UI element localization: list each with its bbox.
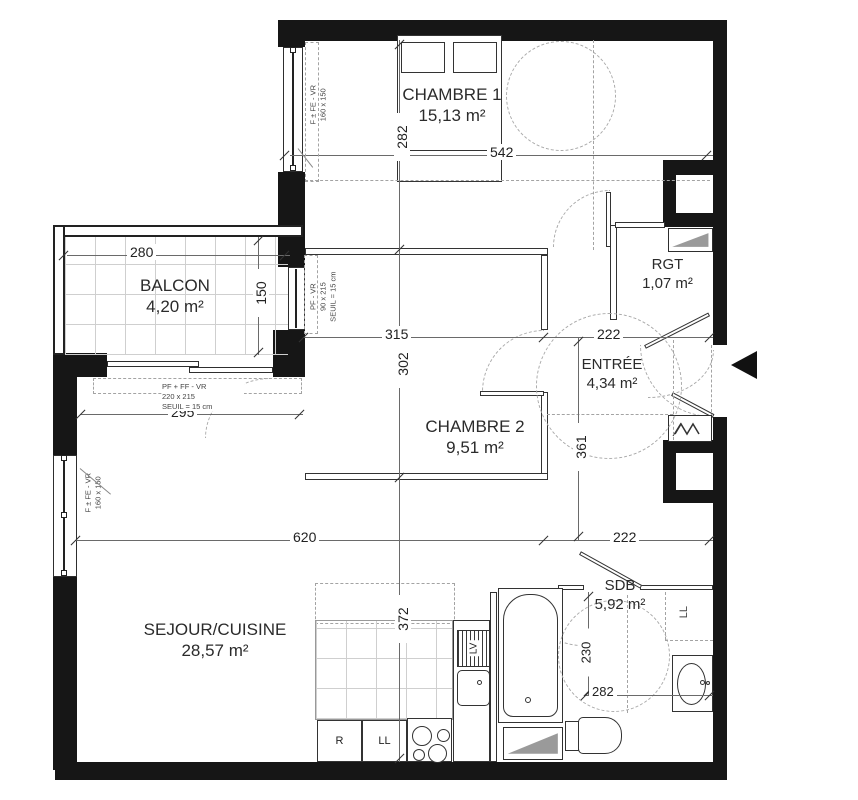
dim-chambre2-h: 302: [395, 340, 411, 388]
dashed-line-chambre1-v: [593, 40, 594, 250]
hall-window-glazing: [295, 269, 297, 328]
room-label-chambre1: CHAMBRE 1 15,13 m²: [382, 84, 522, 127]
sejour-window-label: F ± FE - VR 160 x 150: [83, 448, 103, 538]
balcony-rail-top: [53, 225, 303, 237]
dim-sdb-h: 230: [579, 629, 594, 677]
toilet-bowl: [578, 717, 622, 754]
chambre1-door-leaf: [606, 192, 611, 247]
wall-right-upper: [713, 20, 727, 345]
washer-sdb-label: LL: [677, 606, 691, 618]
electrical-panel: [668, 415, 712, 442]
hall-window-vr-dashed: [304, 255, 318, 334]
chambre1-area: 15,13 m²: [382, 105, 522, 126]
fridge-label: R: [336, 735, 344, 747]
entrance-arrow-icon: [731, 351, 757, 379]
label-line: PF + FF - VR: [162, 382, 244, 392]
entrance-opening-dashed: [711, 345, 712, 417]
sejour-area: 28,57 m²: [135, 640, 295, 661]
entree-name: ENTRÉE: [562, 356, 662, 375]
chambre1-window-vr-dashed: [305, 42, 319, 182]
wall-bottom: [55, 762, 727, 780]
window-mullion: [290, 47, 296, 53]
cooktop-burner: [413, 749, 425, 761]
dashed-line-entree-v: [673, 340, 674, 440]
washer-sdb-dashed-left: [665, 592, 666, 640]
dim-line-315-222: [303, 337, 713, 338]
room-label-rgt: RGT 1,07 m²: [630, 256, 705, 294]
chambre1-name: CHAMBRE 1: [382, 84, 522, 105]
chambre2-door-leaf: [480, 391, 544, 396]
chambre1-window-glazing: [292, 50, 294, 169]
partition-chambre2-south: [305, 473, 548, 480]
label-line: 160 x 150: [93, 448, 103, 538]
room-label-sejour: SEJOUR/CUISINE 28,57 m²: [135, 619, 295, 662]
room-label-chambre2: CHAMBRE 2 9,51 m²: [415, 416, 535, 459]
cooktop-burner: [412, 726, 432, 746]
dashed-circle-chambre1: [506, 41, 616, 151]
bath-cabinet: [503, 727, 563, 760]
window-mullion: [61, 570, 67, 576]
wall-chambre1-west-top: [278, 20, 305, 47]
wall-left-lower: [53, 577, 77, 770]
label-line: SEUIL = 15 cm: [328, 252, 338, 342]
rgt-name: RGT: [630, 256, 705, 275]
zigzag-icon: [669, 416, 711, 441]
shaft1-bottom: [663, 213, 727, 227]
balcony-door-panel: [189, 367, 273, 373]
balcony-rail-left: [53, 225, 65, 355]
wall-balcony-south: [53, 353, 107, 377]
pillow: [401, 42, 445, 73]
partition-rgt-west: [610, 225, 617, 320]
label-line: F ± FE - VR: [83, 448, 93, 538]
dishwasher-label: LV: [468, 641, 479, 657]
chambre2-name: CHAMBRE 2: [415, 416, 535, 437]
cooktop-burner: [437, 729, 450, 742]
partition-chambre1-south: [305, 248, 548, 255]
chambre1-door-arc: [553, 190, 610, 247]
dim-sdb-l: 282: [589, 684, 617, 699]
dim-chambre1-w: 542: [487, 144, 516, 160]
wall-right-lower: [713, 417, 727, 780]
chambre2-door-arc: [482, 330, 544, 392]
washer-label: LL: [378, 735, 390, 747]
dashed-line-chambre1-h: [305, 180, 710, 181]
balcony-door-panel: [107, 361, 199, 367]
label-line: 220 x 215: [162, 392, 244, 402]
washbasin-faucet: [706, 681, 710, 685]
sdb-area: 5,92 m²: [575, 596, 665, 615]
dim-entree-h: 361: [573, 423, 589, 471]
balcony-door-label: PF + FF - VR 220 x 215 SEUIL = 15 cm: [162, 382, 244, 411]
dishwasher: LV: [457, 630, 490, 667]
washer-sdb-dashed-bottom: [665, 640, 713, 641]
room-label-entree: ENTRÉE 4,34 m²: [562, 356, 662, 394]
chambre2-area: 9,51 m²: [415, 437, 535, 458]
partition-rgt-north: [615, 222, 665, 228]
kitchen-upper-cabinets-dashed: [315, 583, 455, 624]
dim-balcon-w: 280: [127, 244, 156, 260]
floor-plan: R LL LV LL 282 542 280 150 315 2: [0, 0, 858, 800]
fridge: R: [317, 720, 362, 762]
shelf-fill: [671, 231, 710, 249]
bathtub-drain: [525, 697, 531, 703]
wall-top: [278, 20, 727, 41]
sejour-name: SEJOUR/CUISINE: [135, 619, 295, 640]
rgt-area: 1,07 m²: [630, 275, 705, 294]
dashed-line-entree-h: [547, 414, 673, 415]
dim-sejour-w: 620: [290, 529, 319, 545]
partition-sdb-west: [490, 592, 497, 762]
washbasin-faucet: [700, 680, 705, 685]
kitchen-counter-grid: [315, 620, 453, 720]
dim-entree-w: 222: [594, 326, 623, 342]
cooktop-burner: [428, 744, 447, 763]
window-mullion: [61, 512, 67, 518]
label-line: 90 x 215: [318, 252, 328, 342]
dim-sejour-h: 372: [395, 595, 411, 643]
window-mullion: [61, 455, 67, 461]
sink-faucet: [477, 680, 482, 685]
label-line: 160 x 150: [318, 63, 328, 147]
room-label-sdb: SDB 5,92 m²: [575, 577, 665, 615]
balcon-name: BALCON: [110, 275, 240, 296]
sdb-name: SDB: [575, 577, 665, 596]
partition-chambre2-east-upper: [541, 255, 548, 330]
label-line: SEUIL = 15 cm: [162, 402, 244, 412]
kitchen-sink: [457, 670, 490, 706]
window-mullion: [290, 165, 296, 171]
cabinet-fill: [506, 730, 560, 757]
dim-line-280: [67, 255, 290, 256]
dim-sdb-w: 222: [610, 529, 639, 545]
room-label-balcon: BALCON 4,20 m²: [110, 275, 240, 318]
dim-balcon-h: 150: [253, 269, 269, 317]
rgt-shelf: [668, 228, 713, 252]
entree-area: 4,34 m²: [562, 375, 662, 394]
shaft2-bottom: [663, 490, 727, 503]
wall-left-upper: [53, 377, 77, 455]
balcon-area: 4,20 m²: [110, 296, 240, 317]
pillow: [453, 42, 497, 73]
toilet-tank: [565, 721, 579, 751]
